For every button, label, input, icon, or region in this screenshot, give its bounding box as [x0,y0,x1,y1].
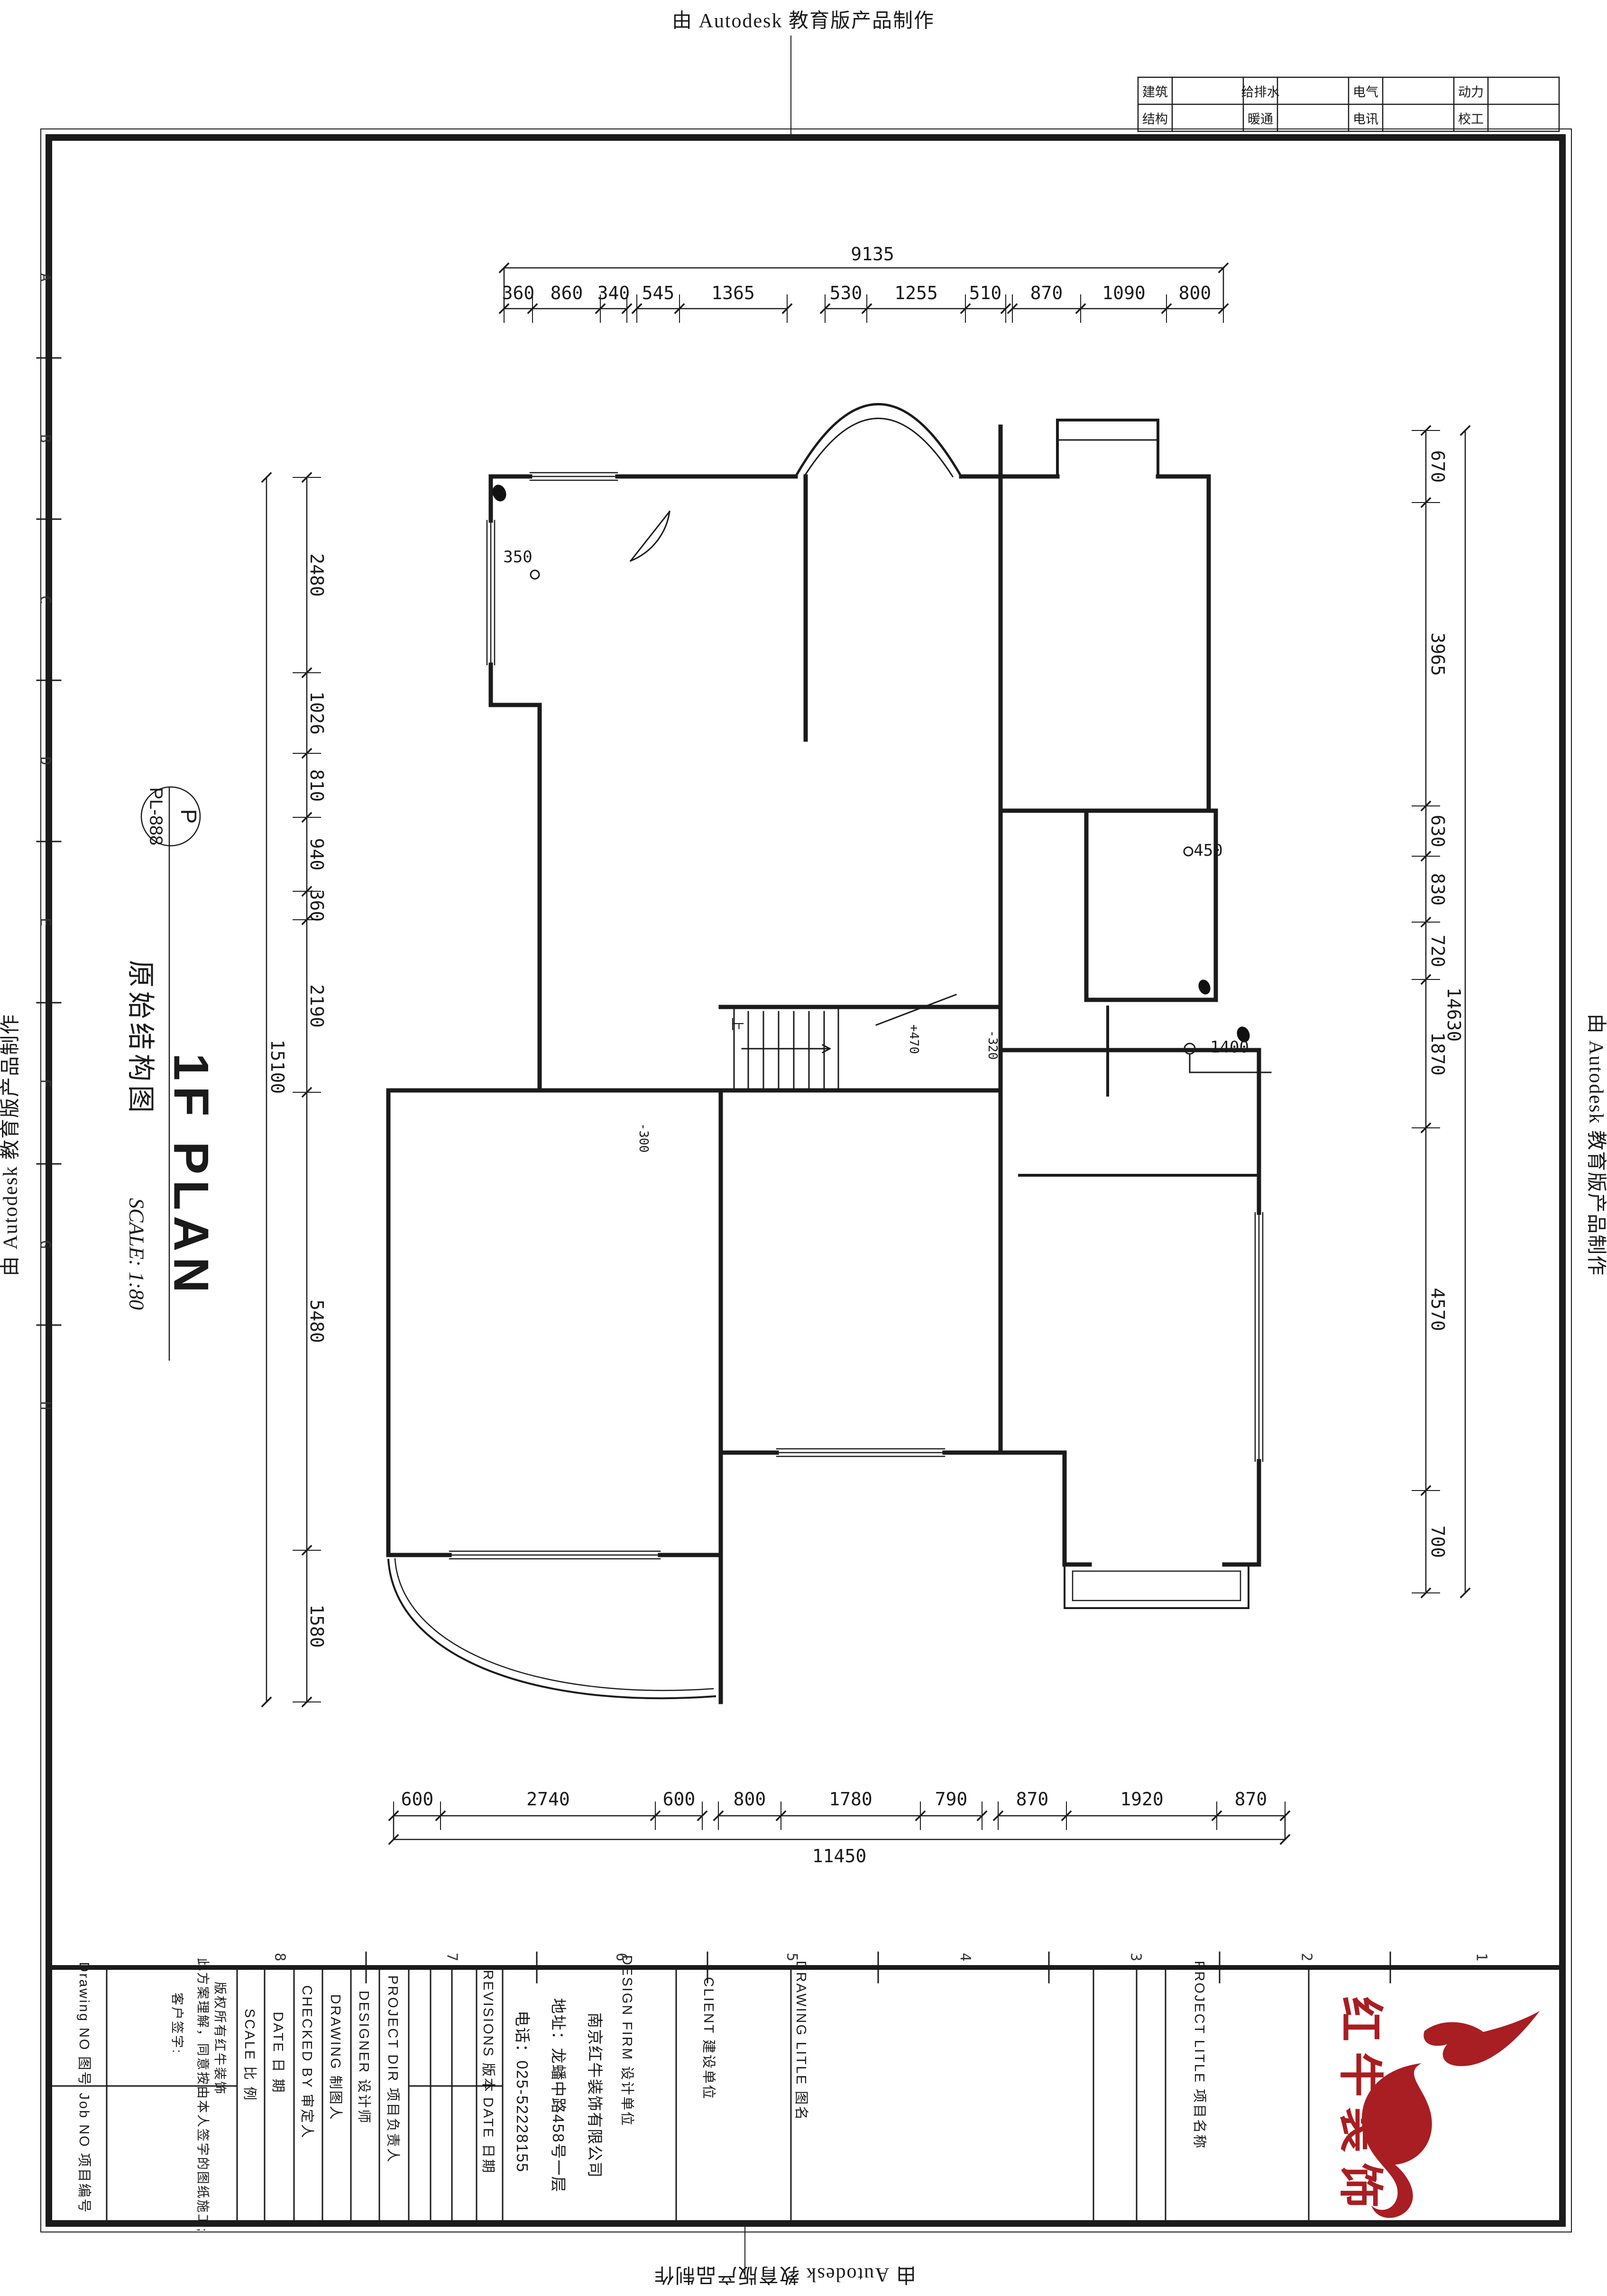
plan-label-level-m300: -300 [636,1123,651,1153]
stair-up-label: 上 [728,1017,747,1031]
dim-bottom-seg-1: 2740 [526,1789,570,1810]
logo-text: 红牛装饰 [1332,1996,1397,2218]
tb-job-no: Job NO 项目编号 [75,2093,95,2214]
tb-design-firm: DESIGN FIRM 设计单位 [618,1955,638,2127]
dim-top-seg-2: 340 [597,283,630,303]
dim-right-seg-4: 720 [1427,935,1448,968]
dim-left-seg-2: 810 [306,769,327,802]
grid-ref-bottom-1: 1 [1473,1953,1490,1961]
dimension-lines [266,268,1465,1839]
dim-bottom-seg-6: 870 [1016,1789,1049,1810]
dim-top-seg-1: 860 [551,283,583,303]
grid-ref-bottom-7: 7 [444,1953,460,1961]
dim-total-bottom: 11450 [812,1846,866,1866]
dim-left-seg-5: 2190 [306,984,327,1028]
dim-bottom-seg-2: 600 [663,1789,696,1810]
tb-drawing-title: DRAWING LITLE 图名 [792,1961,812,2122]
dim-total-top: 9135 [851,244,894,265]
grid-ref-bottom-5: 5 [784,1953,800,1961]
table-cell-elec: 电气 [1353,82,1378,101]
plan-label-450: 450 [1194,841,1222,860]
stairs [734,1007,838,1090]
table-cell-arch: 建筑 [1142,82,1168,101]
dim-right-seg-6: 4570 [1427,1288,1448,1331]
dim-top-seg-3: 545 [642,283,675,303]
grid-ref-bottom-3: 3 [1128,1953,1144,1961]
tb-project-title: PROJECT LITLE 项目名称 [1191,1961,1211,2150]
tb-designer: DESIGNER 设计师 [355,1991,375,2125]
tb-client: CLIENT 建设单位 [700,1977,720,2100]
grid-ref-left-D: D [37,757,54,765]
dim-top-seg-7: 510 [969,283,1002,303]
drawing-name: 原始结构图 [123,960,163,1116]
grid-ref-bottom-2: 2 [1298,1953,1315,1961]
grid-ref-left-B: B [37,434,54,443]
dim-bottom-seg-7: 1920 [1120,1789,1164,1810]
tb-date-2: DATE 日期 [479,2097,499,2174]
dim-right-seg-7: 700 [1427,1526,1448,1558]
drawing-sheet: 由 Autodesk 教育版产品制作 由 Autodesk 教育版产品制作 由 … [0,0,1607,2296]
edu-stamp-right: 由 Autodesk 教育版产品制作 [1584,1014,1607,1276]
edu-stamp-top: 由 Autodesk 教育版产品制作 [672,5,935,34]
dimension-ticks [262,264,1469,1844]
tb-disclaimer-1: 版权所有红牛装饰 [212,1982,230,2095]
tb-project-dir: PROJECT DIR 项目负责人 [384,1976,404,2164]
tb-phone: 电话：025-52228155 [512,2011,535,2173]
tb-drawing: DRAWING 制图人 [327,1994,347,2121]
dim-right-seg-0: 670 [1427,450,1448,483]
scale-note: SCALE: 1:80 [125,1198,149,1310]
grid-ref-bottom-4: 4 [957,1953,973,1961]
dim-left-seg-0: 2480 [306,553,327,597]
dim-bottom-seg-0: 600 [401,1789,434,1810]
dim-left-seg-1: 1026 [306,691,327,735]
edu-stamp-bottom: 由 Autodesk 教育版产品制作 [653,2262,916,2291]
dim-top-seg-0: 360 [502,283,535,303]
tb-disclaimer-2: 此方案理解，同意按由本人签字的图纸施工; [195,1958,213,2233]
discipline-table-lines [1138,77,1559,131]
grid-ref-left-G: G [37,1240,54,1249]
plan-label-1400: 1400 [1210,1038,1249,1057]
table-cell-struct: 结构 [1142,109,1168,128]
grid-ref-left-H: H [37,1401,54,1410]
dim-right-seg-3: 830 [1427,873,1448,906]
table-cell-check: 校工 [1458,109,1484,128]
dim-left-seg-3: 940 [306,838,327,871]
bubble-top-text: P [176,809,202,824]
dim-top-seg-6: 1255 [894,283,938,303]
bubble-bottom-text: PL-888 [146,787,166,846]
plan-label-level-p470: +470 [907,1025,921,1054]
dim-bottom-seg-5: 790 [935,1789,968,1810]
grid-ref-bottom-6: 6 [613,1953,630,1961]
grid-ref-left-C: C [37,595,54,604]
dim-top-seg-10: 800 [1179,283,1212,303]
dim-bottom-seg-4: 1780 [829,1789,872,1810]
structural-columns [490,483,1252,1044]
dim-left-seg-6: 5480 [306,1299,327,1343]
tb-disclaimer-3: 客户签字: [169,1993,188,2055]
tb-revisions: REVISIONS 版本 [479,1970,499,2093]
grid-ref-bottom-8: 8 [272,1953,288,1961]
tb-date: DATE 日 期 [269,2012,289,2094]
dim-left-seg-7: 1580 [306,1604,327,1648]
grid-ref-left-E: E [37,918,54,926]
grid-ref-left-F: F [37,1079,54,1088]
dim-top-seg-9: 1090 [1102,283,1146,303]
dim-top-seg-4: 1365 [711,283,755,303]
dim-bottom-seg-8: 870 [1235,1789,1267,1810]
tb-address: 地址：龙蟠中路458号一层 [548,1998,571,2193]
table-cell-plumb: 给排水 [1241,82,1280,101]
dim-top-seg-8: 870 [1030,283,1063,303]
dim-top-seg-5: 530 [830,283,863,303]
plan-label-level-m320: -320 [985,1030,1000,1060]
dim-left-seg-4: 360 [306,889,327,922]
tb-company: 南京红牛装饰有限公司 [585,2012,607,2178]
tb-drawing-no: Drawing NO 图号 [75,1962,95,2087]
dim-right-seg-1: 3965 [1427,632,1448,676]
grid-ref-left-A: A [37,273,54,282]
dim-right-seg-5: 1870 [1427,1032,1448,1076]
dim-right-seg-2: 630 [1427,815,1448,848]
tb-scale: SCALE 比 例 [241,2009,261,2102]
tb-checked-by: CHECKED BY 审定人 [298,1985,318,2139]
table-cell-telecom: 电讯 [1353,109,1378,128]
table-cell-hvac: 暖通 [1248,109,1273,128]
table-cell-power: 动力 [1458,82,1484,101]
plan-title: 1F PLAN [163,1053,219,1298]
plan-label-350: 350 [503,548,532,567]
dim-bottom-seg-3: 800 [734,1789,766,1810]
